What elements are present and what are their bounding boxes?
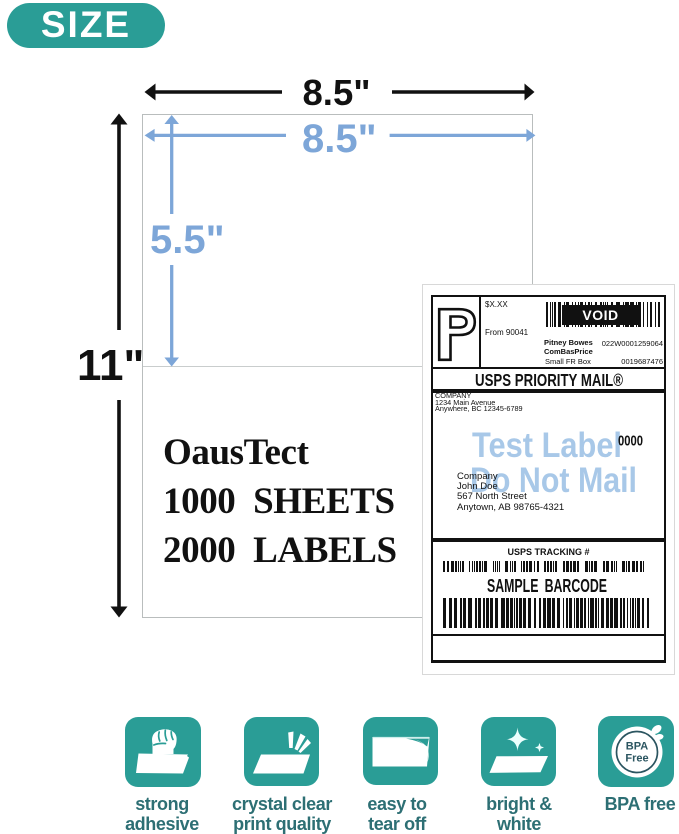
svg-text:Test Label: Test Label xyxy=(472,426,622,465)
svg-text:0000: 0000 xyxy=(618,433,643,449)
svg-text:BPA: BPA xyxy=(626,741,648,753)
svg-text:SAMPLE BARCODE: SAMPLE BARCODE xyxy=(487,576,607,595)
svg-text:Free: Free xyxy=(625,753,648,765)
svg-text:USPS PRIORITY MAIL®: USPS PRIORITY MAIL® xyxy=(475,370,623,389)
